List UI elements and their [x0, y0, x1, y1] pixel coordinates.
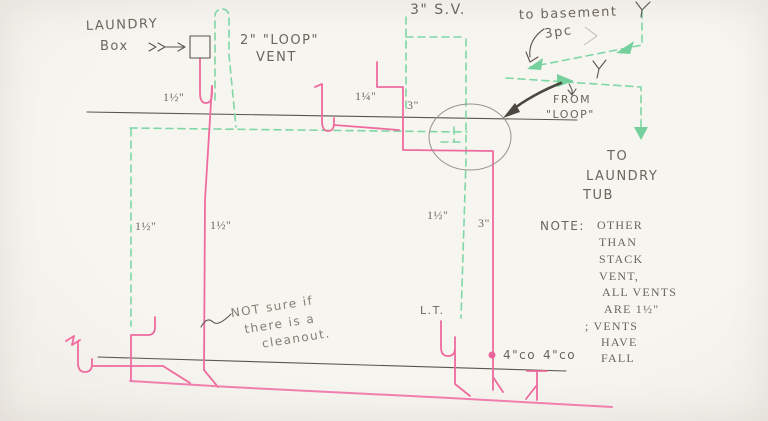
- right-vent-line: [461, 39, 466, 318]
- loop-vent-line: [215, 9, 236, 127]
- cleanout-dot: [489, 352, 496, 359]
- note-line: ARE 1½": [604, 302, 659, 316]
- note-line: FALL: [601, 351, 635, 365]
- to-basement-arrow: [526, 29, 544, 62]
- to-basement-label: to basement: [519, 5, 618, 23]
- loop-vent-label: 2" "LOOP": [240, 33, 319, 48]
- scanned-sketch-page: LAUNDRY Box 2" "LOOP" VENT 3" S.V. to ba…: [0, 0, 768, 421]
- laundry-box-label: LAUNDRY: [86, 16, 159, 34]
- stack-vent-label: 3" S.V.: [410, 2, 466, 18]
- from-loop-label-2: "LOOP": [546, 108, 595, 121]
- text-labels: LAUNDRY Box 2" "LOOP" VENT 3" S.V. to ba…: [86, 2, 678, 365]
- junction-circle: [429, 104, 511, 170]
- basement-3pc-label: 3pc: [543, 23, 573, 42]
- cleanout-riser: [526, 371, 547, 400]
- faint-chevron-mark: [584, 27, 597, 45]
- laundry-drain-pipe: [204, 86, 218, 387]
- to-laundry-tub-label: TO: [606, 149, 628, 164]
- note-squiggle-arrow: [201, 314, 231, 327]
- pencil-marks: [149, 2, 650, 327]
- laundry-tub-abbrev: L.T.: [420, 304, 445, 317]
- note-heading: NOTE:: [540, 219, 585, 233]
- pipe-size-left-vent: 1½": [135, 219, 156, 233]
- pipe-size-laundry-drain: 1½": [210, 218, 231, 232]
- note-line: ALL VENTS: [602, 285, 677, 299]
- cleanout-label-left: 4"co: [503, 348, 536, 362]
- laundry-tub-trap: [441, 321, 470, 396]
- laundry-box-trap: [200, 58, 212, 103]
- plumbing-sketch: LAUNDRY Box 2" "LOOP" VENT 3" S.V. to ba…: [0, 0, 768, 421]
- vent-arrowhead: [634, 127, 648, 140]
- pipe-size-mid-fixture: 1¼": [355, 89, 376, 103]
- pipe-size-stack-upper: 3": [407, 98, 419, 112]
- standpipe: [131, 317, 155, 381]
- main-drain-line: [130, 381, 612, 407]
- vent-arrowhead: [557, 74, 574, 87]
- vent-header-line: [130, 128, 467, 132]
- to-laundry-tub-label-2: LAUNDRY: [586, 169, 658, 184]
- note-line: VENT,: [599, 269, 639, 283]
- cleanout-note: NOT sure if there is a cleanout.: [230, 292, 332, 355]
- pipe-size-stack-lower: 3": [478, 216, 490, 230]
- to-laundry-tub-label-3: TUB: [582, 188, 614, 203]
- note-line: ; VENTS: [585, 319, 638, 333]
- wye-fitting-symbol: [593, 60, 606, 78]
- from-loop-label: FROM: [553, 93, 591, 106]
- note-line: THAN: [599, 235, 637, 249]
- upper-floor-line: [87, 112, 577, 120]
- note-line: HAVE: [601, 335, 638, 349]
- junction-vent-tee: [441, 127, 460, 142]
- pipe-size-laundry-trap: 1½": [163, 90, 184, 104]
- laundry-box-label-2: Box: [100, 39, 129, 54]
- laundry-box: [190, 36, 210, 58]
- vent-arrowhead: [616, 41, 634, 54]
- wye-fitting-symbol: [636, 2, 650, 17]
- note-line: OTHER: [597, 218, 643, 232]
- floor-lines: [87, 112, 577, 371]
- note-line: STACK: [599, 252, 643, 266]
- laundry-box-arrow: [149, 43, 185, 51]
- loop-vent-label-2: VENT: [256, 50, 297, 65]
- pipe-size-right-vent: 1½": [427, 208, 448, 222]
- cleanout-label-right: 4"co: [543, 348, 576, 362]
